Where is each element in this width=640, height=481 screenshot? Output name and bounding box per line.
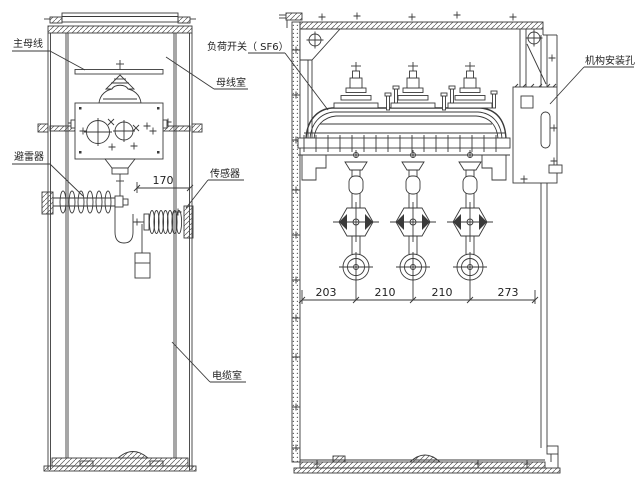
label-surge-arrester: 避雷器	[12, 150, 83, 196]
top-bushing-phase-a	[334, 62, 378, 108]
cable-bushing-phase-a	[333, 150, 379, 300]
label-busbar-compartment-text: 母线室	[216, 76, 246, 89]
dimension-chain: 203 210 210 273	[299, 286, 538, 304]
square-hole	[521, 96, 533, 108]
label-surge-arrester-text: 避雷器	[14, 150, 44, 163]
label-mechanism-mounting-hole: 机构安装孔	[550, 54, 635, 104]
right-base	[294, 455, 560, 473]
left-wall-strip	[292, 22, 300, 462]
top-lid	[44, 13, 196, 23]
support-insulator	[99, 75, 141, 103]
cable-bushing-phase-c	[447, 150, 493, 300]
right-view-front-section: 203 210 210 273	[279, 12, 562, 474]
mounting-slot	[541, 112, 550, 148]
cable-bushing-phase-b	[390, 150, 436, 300]
label-cable-compartment: 电缆室	[172, 342, 246, 382]
dim-273-text: 273	[498, 286, 519, 299]
top-rail	[300, 12, 543, 30]
sf6-tank	[298, 108, 510, 180]
dim-170-text: 170	[153, 174, 174, 187]
label-sensor-text: 传感器	[210, 167, 240, 180]
dimension-170: 170	[134, 174, 193, 193]
dim-210a-text: 210	[375, 286, 396, 299]
top-plate	[48, 26, 192, 33]
main-busbar-bar	[75, 60, 163, 74]
corner-gusset	[300, 29, 340, 138]
switchgear-section-drawing: 170	[0, 0, 640, 481]
top-bushing-phase-c	[448, 62, 492, 108]
left-base	[44, 452, 196, 472]
label-sensor: 传感器	[186, 167, 244, 208]
label-busbar-compartment: 母线室	[166, 57, 248, 89]
switch-mechanism-box	[71, 103, 167, 159]
top-right-bracket	[520, 29, 557, 87]
funnel-outlet	[105, 159, 135, 186]
label-cable-compartment-text: 电缆室	[212, 369, 242, 382]
technical-drawing-canvas: 170	[0, 0, 640, 481]
label-mechanism-mounting-hole-text: 机构安装孔	[585, 54, 635, 67]
left-view-side-section: 170	[38, 13, 202, 471]
label-main-busbar-text: 主母线	[13, 37, 43, 50]
dim-203-text: 203	[316, 286, 337, 299]
label-main-busbar: 主母线	[12, 37, 85, 70]
label-load-switch-text: 负荷开关（ SF6）	[207, 40, 289, 53]
dim-210b-text: 210	[432, 286, 453, 299]
